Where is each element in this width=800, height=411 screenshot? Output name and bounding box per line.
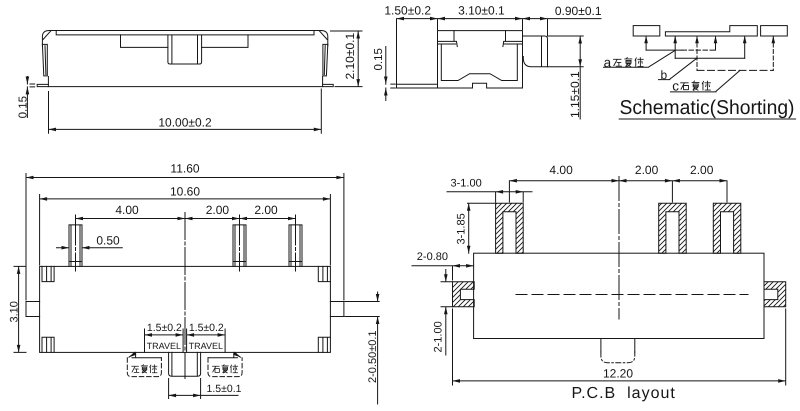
- svg-text:1.5±0.1: 1.5±0.1: [207, 383, 242, 395]
- svg-text:2-0.80: 2-0.80: [417, 251, 448, 263]
- svg-text:3.10: 3.10: [8, 301, 20, 322]
- svg-text:3.10±0.1: 3.10±0.1: [458, 3, 505, 17]
- svg-text:2.10±0.1: 2.10±0.1: [343, 33, 357, 80]
- svg-text:3-1.85: 3-1.85: [456, 213, 468, 244]
- svg-text:0.50: 0.50: [96, 233, 120, 247]
- svg-text:11.60: 11.60: [170, 161, 199, 175]
- svg-text:2.00: 2.00: [206, 203, 230, 217]
- svg-text:4.00: 4.00: [115, 203, 139, 217]
- svg-text:1.15±0.1: 1.15±0.1: [568, 71, 582, 118]
- svg-text:10.00±0.2: 10.00±0.2: [158, 116, 212, 130]
- svg-text:2.00: 2.00: [690, 163, 714, 177]
- svg-text:0.90±0.1: 0.90±0.1: [555, 4, 602, 18]
- svg-text:c: c: [672, 79, 679, 94]
- svg-text:b: b: [661, 68, 668, 82]
- svg-text:TRAVEL: TRAVEL: [189, 341, 223, 351]
- svg-text:12.20: 12.20: [603, 366, 633, 380]
- svg-text:3-1.00: 3-1.00: [451, 178, 482, 190]
- svg-text:2-1.00: 2-1.00: [432, 321, 444, 352]
- svg-text:Schematic(Shorting): Schematic(Shorting): [620, 97, 795, 119]
- svg-text:0.15: 0.15: [18, 96, 30, 118]
- svg-text:2-0.50±0.1: 2-0.50±0.1: [367, 330, 379, 383]
- svg-text:1.5±0.2: 1.5±0.2: [189, 322, 224, 334]
- svg-text:TRAVEL: TRAVEL: [147, 341, 181, 351]
- svg-text:10.60: 10.60: [170, 185, 200, 199]
- svg-text:1.50±0.2: 1.50±0.2: [384, 3, 431, 17]
- svg-text:1.5±0.2: 1.5±0.2: [147, 322, 182, 334]
- svg-text:P.C.B layout: P.C.B layout: [572, 385, 676, 402]
- svg-text:0.15: 0.15: [373, 48, 385, 70]
- svg-text:a: a: [604, 55, 612, 70]
- svg-text:2.00: 2.00: [254, 203, 278, 217]
- svg-text:2.00: 2.00: [635, 163, 659, 177]
- svg-text:4.00: 4.00: [549, 163, 573, 177]
